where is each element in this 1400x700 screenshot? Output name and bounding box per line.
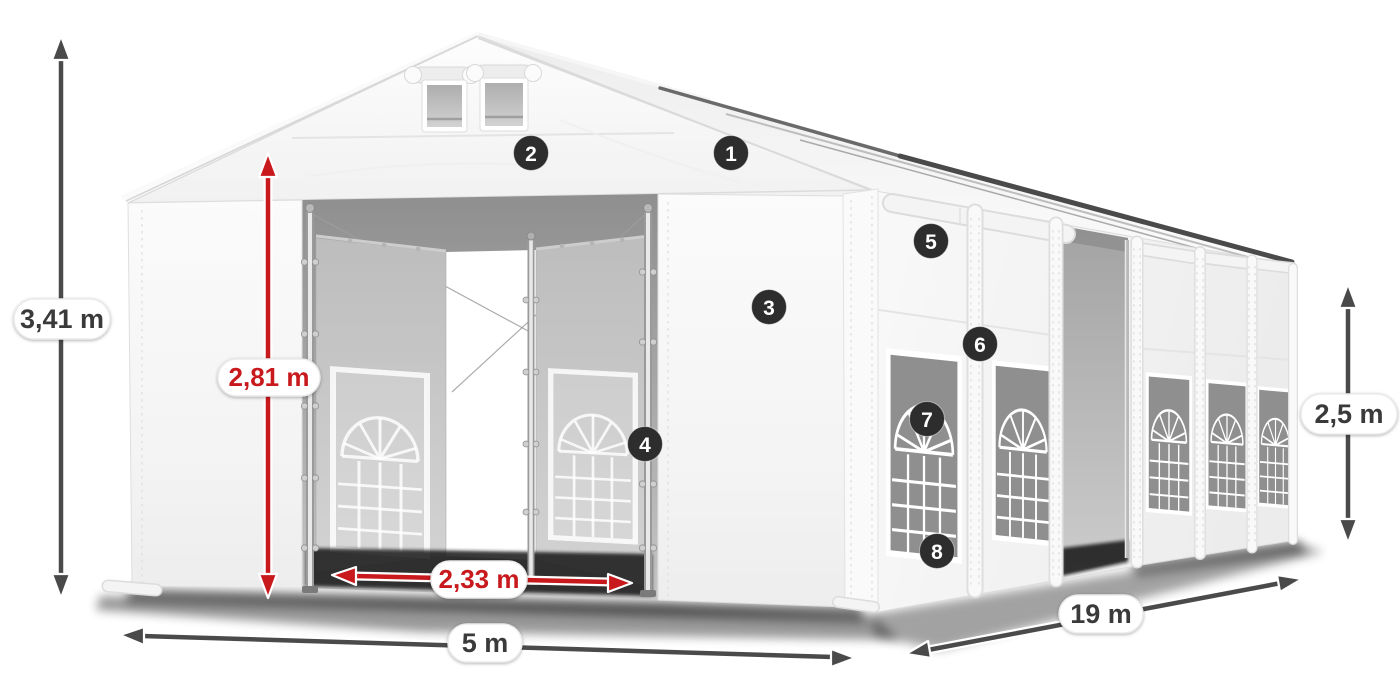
entrance-opening [302,194,658,600]
svg-text:2,5 m: 2,5 m [1314,399,1383,429]
marker-1: 1 [714,136,749,171]
label-width: 5 m [448,624,522,662]
marker-5: 5 [914,224,949,259]
svg-text:1: 1 [725,143,737,166]
label-total-height: 3,41 m [14,299,110,339]
svg-text:7: 7 [921,409,933,432]
svg-text:3: 3 [763,297,775,320]
side-window-4 [1207,381,1246,511]
label-side-height: 2,5 m [1301,394,1397,434]
marker-2: 2 [514,136,549,171]
marker-4: 4 [628,427,663,462]
svg-text:19 m: 19 m [1070,599,1132,629]
marker-7: 7 [910,402,945,437]
svg-text:6: 6 [974,334,986,357]
side-window-2 [994,363,1052,544]
side-window-5 [1258,388,1293,507]
marker-8: 8 [920,534,955,569]
svg-text:3,41 m: 3,41 m [20,304,104,334]
tent-illustration-svg: 3,41 m 2,81 m 2,33 m 5 m 19 m 2,5 m 1 2 [0,0,1400,700]
side-window-3 [1147,374,1190,514]
label-entrance-width: 2,33 m [431,561,527,598]
label-entrance-height: 2,81 m [218,359,320,396]
svg-text:2,81 m: 2,81 m [229,362,310,392]
svg-text:5 m: 5 m [462,628,509,658]
marker-6: 6 [963,327,998,362]
label-length: 19 m [1059,595,1143,633]
svg-text:5: 5 [925,231,937,254]
marker-3: 3 [752,290,787,325]
svg-text:2,33 m: 2,33 m [439,564,520,594]
tent-product-illustration: 3,41 m 2,81 m 2,33 m 5 m 19 m 2,5 m 1 2 [0,0,1400,700]
svg-text:8: 8 [931,541,943,564]
svg-text:4: 4 [639,434,651,457]
svg-text:2: 2 [525,143,537,166]
side-window-1 [888,351,959,560]
front-wall-right [658,189,878,612]
